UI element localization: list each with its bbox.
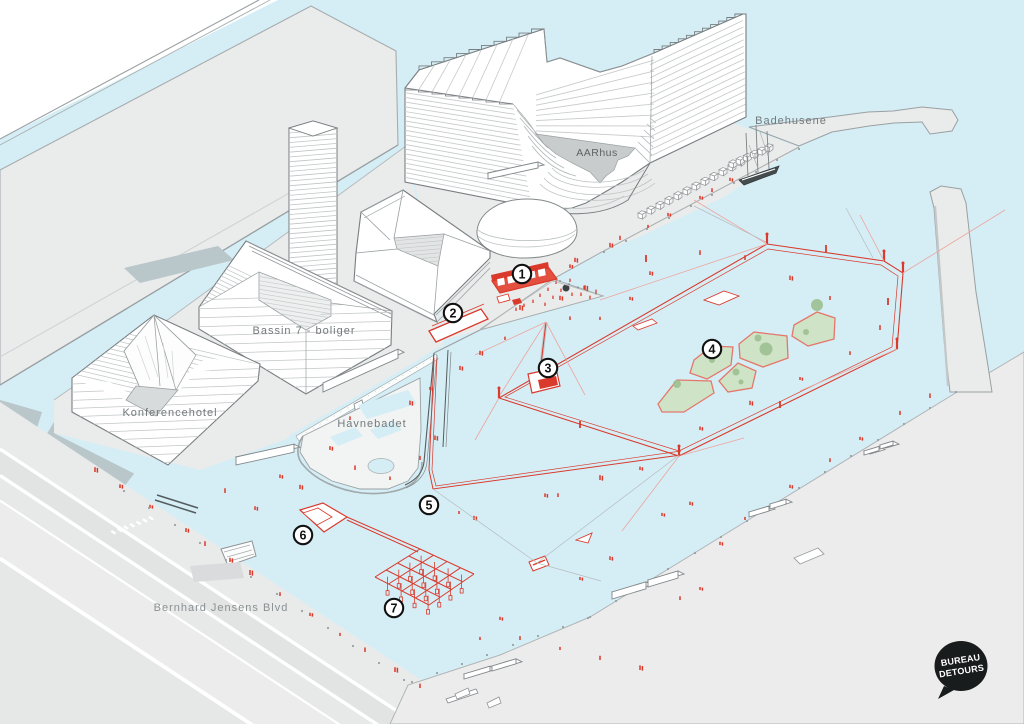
svg-text:5: 5: [426, 498, 433, 512]
svg-text:Havnebadet: Havnebadet: [337, 418, 406, 430]
svg-text:3: 3: [545, 361, 552, 375]
svg-text:Badehusene: Badehusene: [755, 115, 827, 127]
svg-text:AARhus: AARhus: [576, 147, 618, 159]
svg-text:1: 1: [519, 267, 526, 281]
svg-text:7: 7: [391, 601, 398, 615]
svg-text:Bassin 7 - boliger: Bassin 7 - boliger: [253, 325, 356, 337]
svg-text:4: 4: [709, 342, 716, 356]
svg-text:2: 2: [450, 306, 457, 320]
svg-text:Bernhard Jensens Blvd: Bernhard Jensens Blvd: [154, 602, 289, 614]
svg-text:Konferencehotel: Konferencehotel: [122, 407, 217, 419]
svg-text:6: 6: [300, 528, 307, 542]
